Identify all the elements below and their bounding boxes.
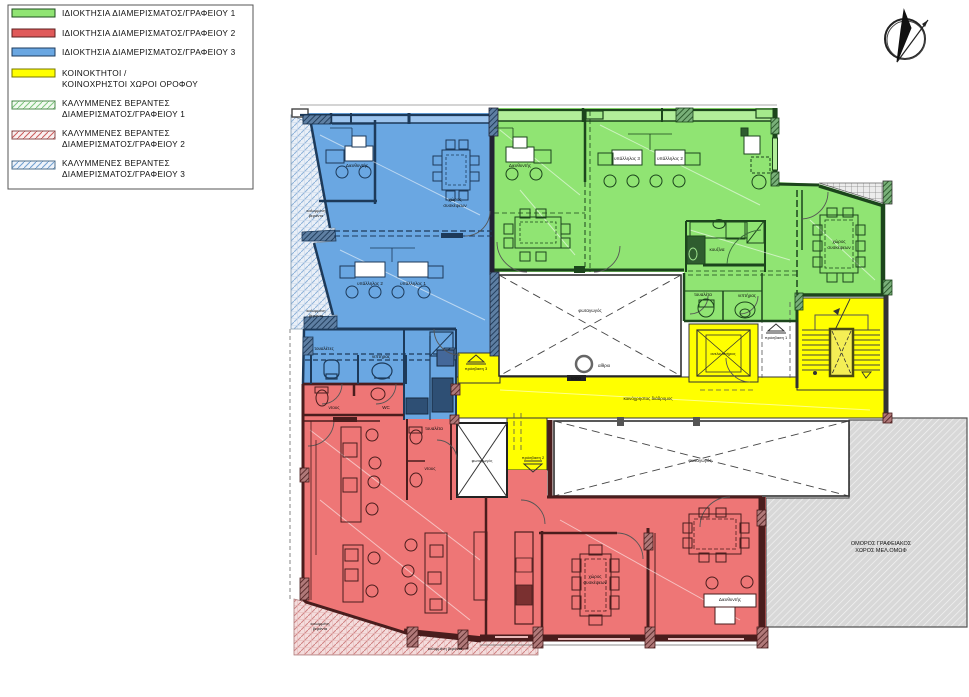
svg-text:ΚΑΛΥΜΜΕΝΕΣ ΒΕΡΑΝΤΕΣ: ΚΑΛΥΜΜΕΝΕΣ ΒΕΡΑΝΤΕΣ [62,158,170,168]
svg-text:ΟΜΟΡΟΣ ΓΡΑΦΕΙΑΚΟΣ: ΟΜΟΡΟΣ ΓΡΑΦΕΙΑΚΟΣ [851,541,912,547]
svg-text:βεράντα: βεράντα [309,313,324,318]
svg-text:φωταγωγός: φωταγωγός [688,457,712,463]
svg-text:υπάλληλος 1: υπάλληλος 1 [400,280,426,286]
svg-text:συσκέψεων: συσκέψεων [827,244,851,250]
svg-text:υπάλληλος 2: υπάλληλος 2 [357,280,383,286]
svg-text:φωταγωγός: φωταγωγός [472,458,493,463]
svg-text:υπάλληλος 3: υπάλληλος 3 [614,155,640,161]
svg-text:Διευθυντής: Διευθυντής [346,162,369,168]
svg-text:ντους: ντους [424,466,436,471]
svg-text:Διευθυντής: Διευθυντής [509,162,532,168]
svg-text:χώρος: χώρος [449,196,463,202]
svg-text:υπάλληλος 2: υπάλληλος 2 [657,155,683,161]
svg-text:νιπτήρας: νιπτήρας [372,353,391,359]
svg-text:βεράντα: βεράντα [309,213,324,218]
svg-text:συσκέψεων: συσκέψεων [443,202,467,208]
svg-text:ΔΙΑΜΕΡΙΣΜΑΤΟΣ/ΓΡΑΦΕΙΟΥ 1: ΔΙΑΜΕΡΙΣΜΑΤΟΣ/ΓΡΑΦΕΙΟΥ 1 [62,109,185,119]
svg-text:5000: 5000 [571,376,582,381]
svg-text:βεράντα: βεράντα [313,626,328,631]
svg-text:WC: WC [382,405,390,410]
svg-text:αίθριο: αίθριο [598,363,611,368]
svg-text:ΧΩΡΟΣ ΜΕΛ.ΟΜΩΦ: ΧΩΡΟΣ ΜΕΛ.ΟΜΩΦ [855,548,907,554]
svg-text:ΔΙΑΜΕΡΙΣΜΑΤΟΣ/ΓΡΑΦΕΙΟΥ 2: ΔΙΑΜΕΡΙΣΜΑΤΟΣ/ΓΡΑΦΕΙΟΥ 2 [62,139,185,149]
svg-text:κουζίνα: κουζίνα [710,247,725,252]
svg-text:ΚΑΛΥΜΜΕΝΕΣ ΒΕΡΑΝΤΕΣ: ΚΑΛΥΜΜΕΝΕΣ ΒΕΡΑΝΤΕΣ [62,98,170,108]
svg-text:ΚΟΙΝΟΚΤΗΤΟΙ /: ΚΟΙΝΟΚΤΗΤΟΙ / [62,68,127,78]
svg-text:χώρος: χώρος [833,238,847,244]
svg-text:ανελκυστήρας: ανελκυστήρας [710,351,735,356]
svg-text:ΙΔΙΟΚΤΗΣΙΑ ΔΙΑΜΕΡΙΣΜΑΤΟΣ/ΓΡΑΦΕ: ΙΔΙΟΚΤΗΣΙΑ ΔΙΑΜΕΡΙΣΜΑΤΟΣ/ΓΡΑΦΕΙΟΥ 1 [62,8,236,18]
svg-text:τουαλέτα: τουαλέτα [694,291,712,297]
svg-text:ΚΑΛΥΜΜΕΝΕΣ ΒΕΡΑΝΤΕΣ: ΚΑΛΥΜΜΕΝΕΣ ΒΕΡΑΝΤΕΣ [62,128,170,138]
svg-text:πρόσβαση 3: πρόσβαση 3 [465,366,488,371]
svg-text:ΙΔΙΟΚΤΗΣΙΑ ΔΙΑΜΕΡΙΣΜΑΤΟΣ/ΓΡΑΦΕ: ΙΔΙΟΚΤΗΣΙΑ ΔΙΑΜΕΡΙΣΜΑΤΟΣ/ΓΡΑΦΕΙΟΥ 2 [62,28,236,38]
svg-text:πρόσβαση 2: πρόσβαση 2 [522,455,545,460]
svg-text:ντους: ντους [328,405,340,410]
svg-text:Διευθυντής: Διευθυντής [719,596,742,602]
svg-text:φωταγωγός: φωταγωγός [578,307,602,313]
svg-text:τουαλέτα: τουαλέτα [425,425,443,431]
svg-text:πρόσβαση 1: πρόσβαση 1 [765,335,788,340]
svg-text:κοινόχρηστος διάδρομος: κοινόχρηστος διάδρομος [623,395,673,401]
svg-text:ΙΔΙΟΚΤΗΣΙΑ ΔΙΑΜΕΡΙΣΜΑΤΟΣ/ΓΡΑΦΕ: ΙΔΙΟΚΤΗΣΙΑ ΔΙΑΜΕΡΙΣΜΑΤΟΣ/ΓΡΑΦΕΙΟΥ 3 [62,47,236,57]
svg-text:συσκέψεων: συσκέψεων [583,579,607,585]
svg-text:χώρος: χώρος [589,573,603,579]
svg-text:τουαλέτες: τουαλέτες [314,345,334,351]
svg-text:καλυμμένη βεράντα: καλυμμένη βεράντα [428,646,463,651]
svg-text:ΚΟΙΝΟΧΡΗΣΤΟΙ ΧΩΡΟΙ ΟΡΟΦΟΥ: ΚΟΙΝΟΧΡΗΣΤΟΙ ΧΩΡΟΙ ΟΡΟΦΟΥ [62,79,198,89]
svg-text:νιπτήρας: νιπτήρας [738,292,757,298]
svg-text:ΔΙΑΜΕΡΙΣΜΑΤΟΣ/ΓΡΑΦΕΙΟΥ 3: ΔΙΑΜΕΡΙΣΜΑΤΟΣ/ΓΡΑΦΕΙΟΥ 3 [62,169,185,179]
